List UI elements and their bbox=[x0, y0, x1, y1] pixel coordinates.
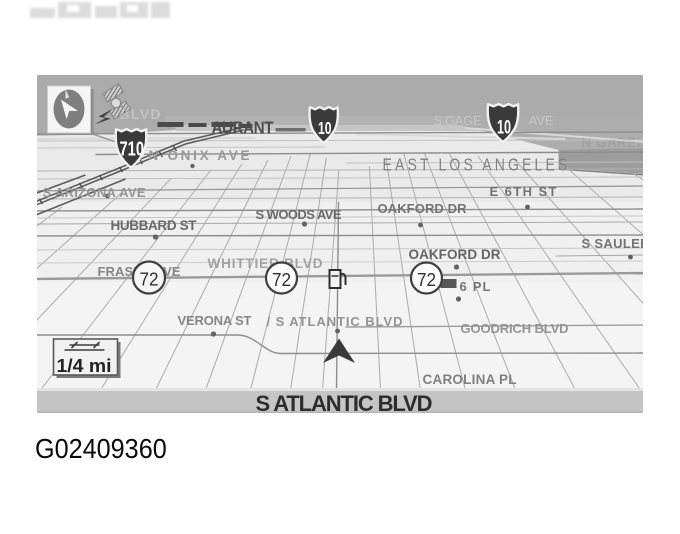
svg-text:10: 10 bbox=[497, 118, 511, 139]
svg-text:10: 10 bbox=[318, 118, 332, 138]
svg-text:72: 72 bbox=[417, 270, 436, 290]
svg-text:E 6TH ST: E 6TH ST bbox=[489, 184, 556, 199]
svg-text:S SAULER: S SAULER bbox=[581, 236, 643, 251]
svg-text:/ S ATLANTIC BLVD: / S ATLANTIC BLVD bbox=[266, 314, 402, 329]
svg-text:S ARIZONA AVE: S ARIZONA AVE bbox=[42, 185, 145, 200]
svg-text:WHITTIER BLVD: WHITTIER BLVD bbox=[207, 256, 322, 271]
svg-text:710: 710 bbox=[119, 139, 144, 161]
svg-text:72: 72 bbox=[139, 270, 158, 290]
svg-text:OAKFORD DR: OAKFORD DR bbox=[408, 247, 500, 262]
svg-text:CAROLINA PL: CAROLINA PL bbox=[422, 372, 516, 387]
svg-text:1/4 mi: 1/4 mi bbox=[56, 356, 111, 376]
svg-text:S WOODS AVE: S WOODS AVE bbox=[255, 207, 341, 222]
svg-text:N ONIX AVE: N ONIX AVE bbox=[148, 148, 249, 163]
svg-text:AVE: AVE bbox=[528, 113, 553, 128]
svg-text:6 PL: 6 PL bbox=[459, 279, 490, 294]
svg-text:S ATLANTIC BLVD: S ATLANTIC BLVD bbox=[255, 391, 432, 413]
svg-text:GOODRICH BLVD: GOODRICH BLVD bbox=[460, 321, 568, 336]
svg-text:72: 72 bbox=[272, 270, 291, 290]
svg-text:AURANT: AURANT bbox=[211, 117, 274, 137]
svg-text:S GAGE: S GAGE bbox=[433, 113, 481, 128]
svg-text:OAKFORD DR: OAKFORD DR bbox=[377, 201, 467, 216]
svg-text:VERONA ST: VERONA ST bbox=[177, 313, 251, 328]
svg-text:HUBBARD ST: HUBBARD ST bbox=[110, 218, 197, 233]
